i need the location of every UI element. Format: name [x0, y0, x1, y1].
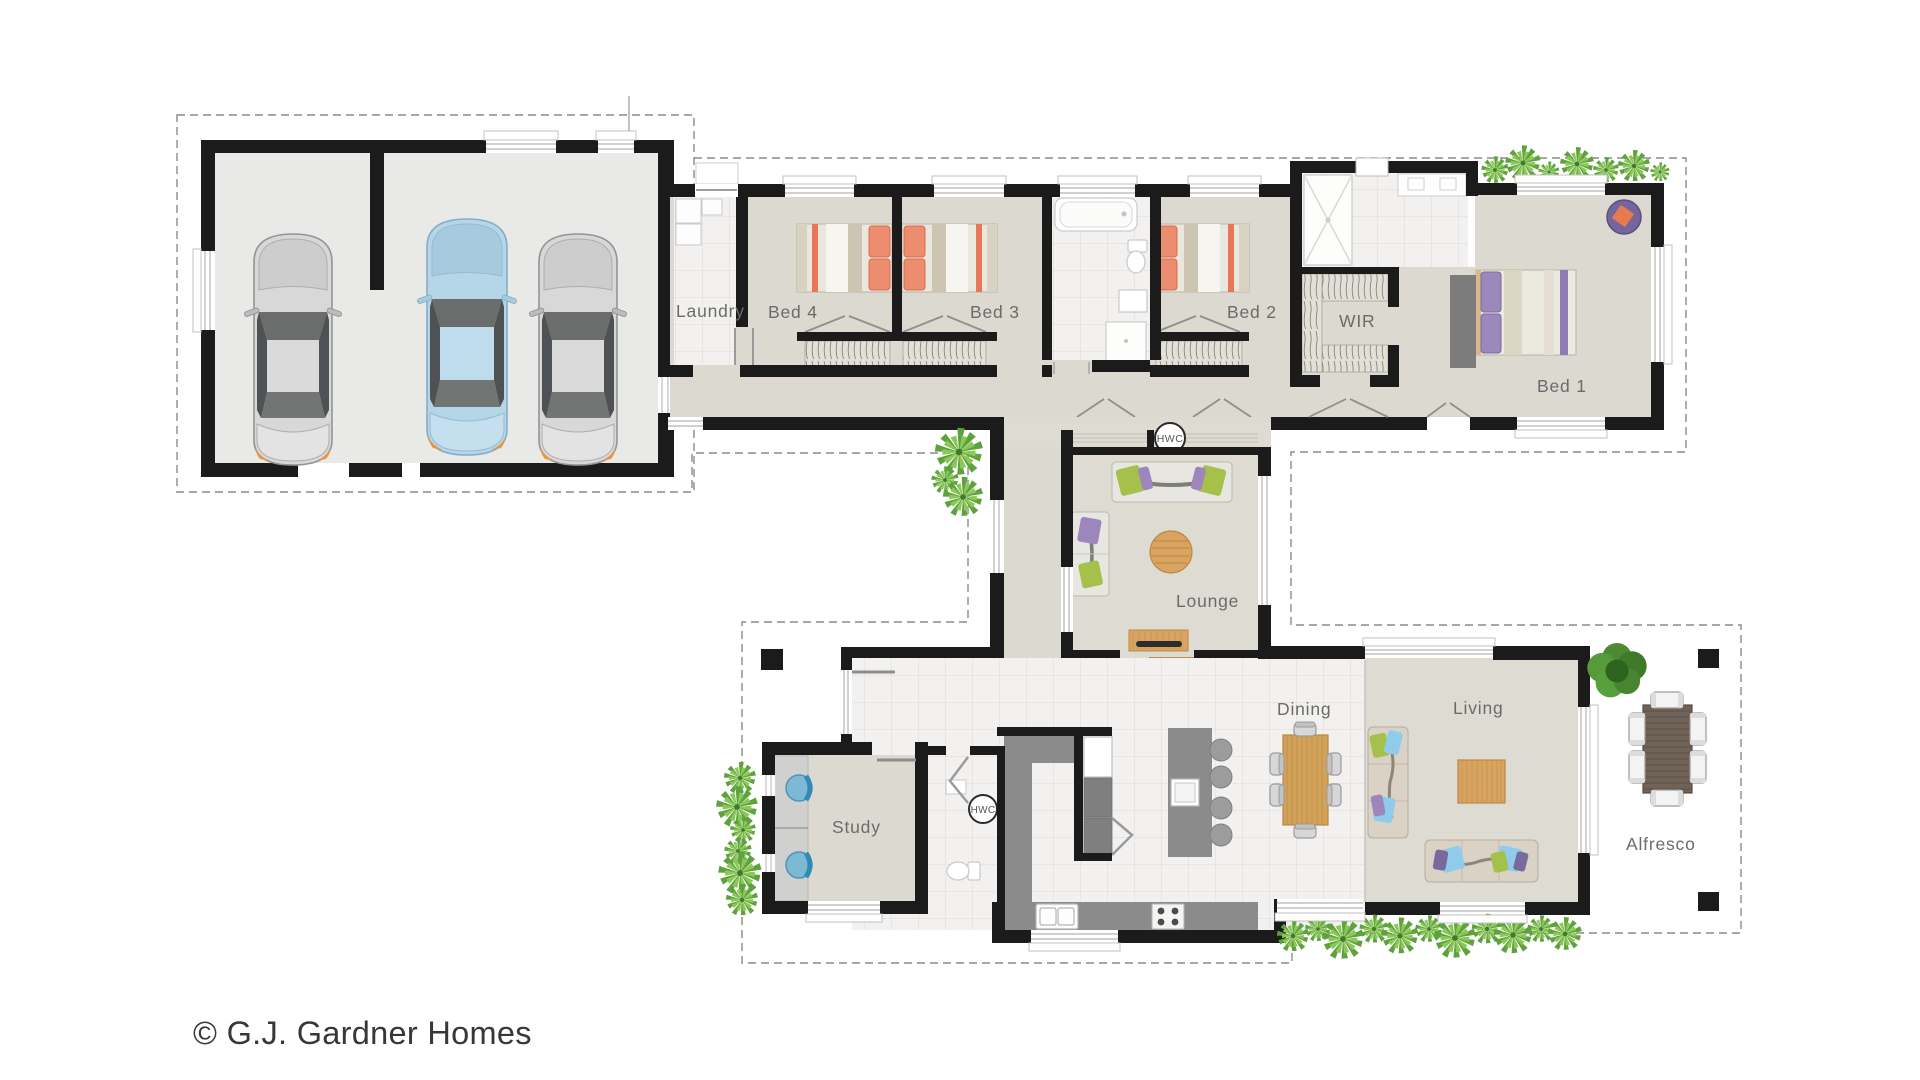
svg-text:WIR: WIR — [1339, 311, 1375, 331]
svg-text:Dining: Dining — [1277, 699, 1331, 719]
svg-text:HWC: HWC — [971, 805, 996, 816]
svg-text:Alfresco: Alfresco — [1626, 834, 1696, 854]
svg-text:Study: Study — [832, 817, 881, 837]
svg-text:HWC: HWC — [1157, 433, 1184, 445]
svg-text:Bed 2: Bed 2 — [1227, 302, 1277, 322]
svg-text:Laundry: Laundry — [676, 301, 745, 321]
svg-text:Lounge: Lounge — [1176, 591, 1239, 611]
svg-text:Bed 4: Bed 4 — [768, 302, 818, 322]
svg-text:Bed 1: Bed 1 — [1537, 376, 1587, 396]
svg-text:Bed 3: Bed 3 — [970, 302, 1020, 322]
svg-text:Living: Living — [1453, 698, 1504, 718]
svg-text:© G.J. Gardner Homes: © G.J. Gardner Homes — [193, 1015, 532, 1051]
